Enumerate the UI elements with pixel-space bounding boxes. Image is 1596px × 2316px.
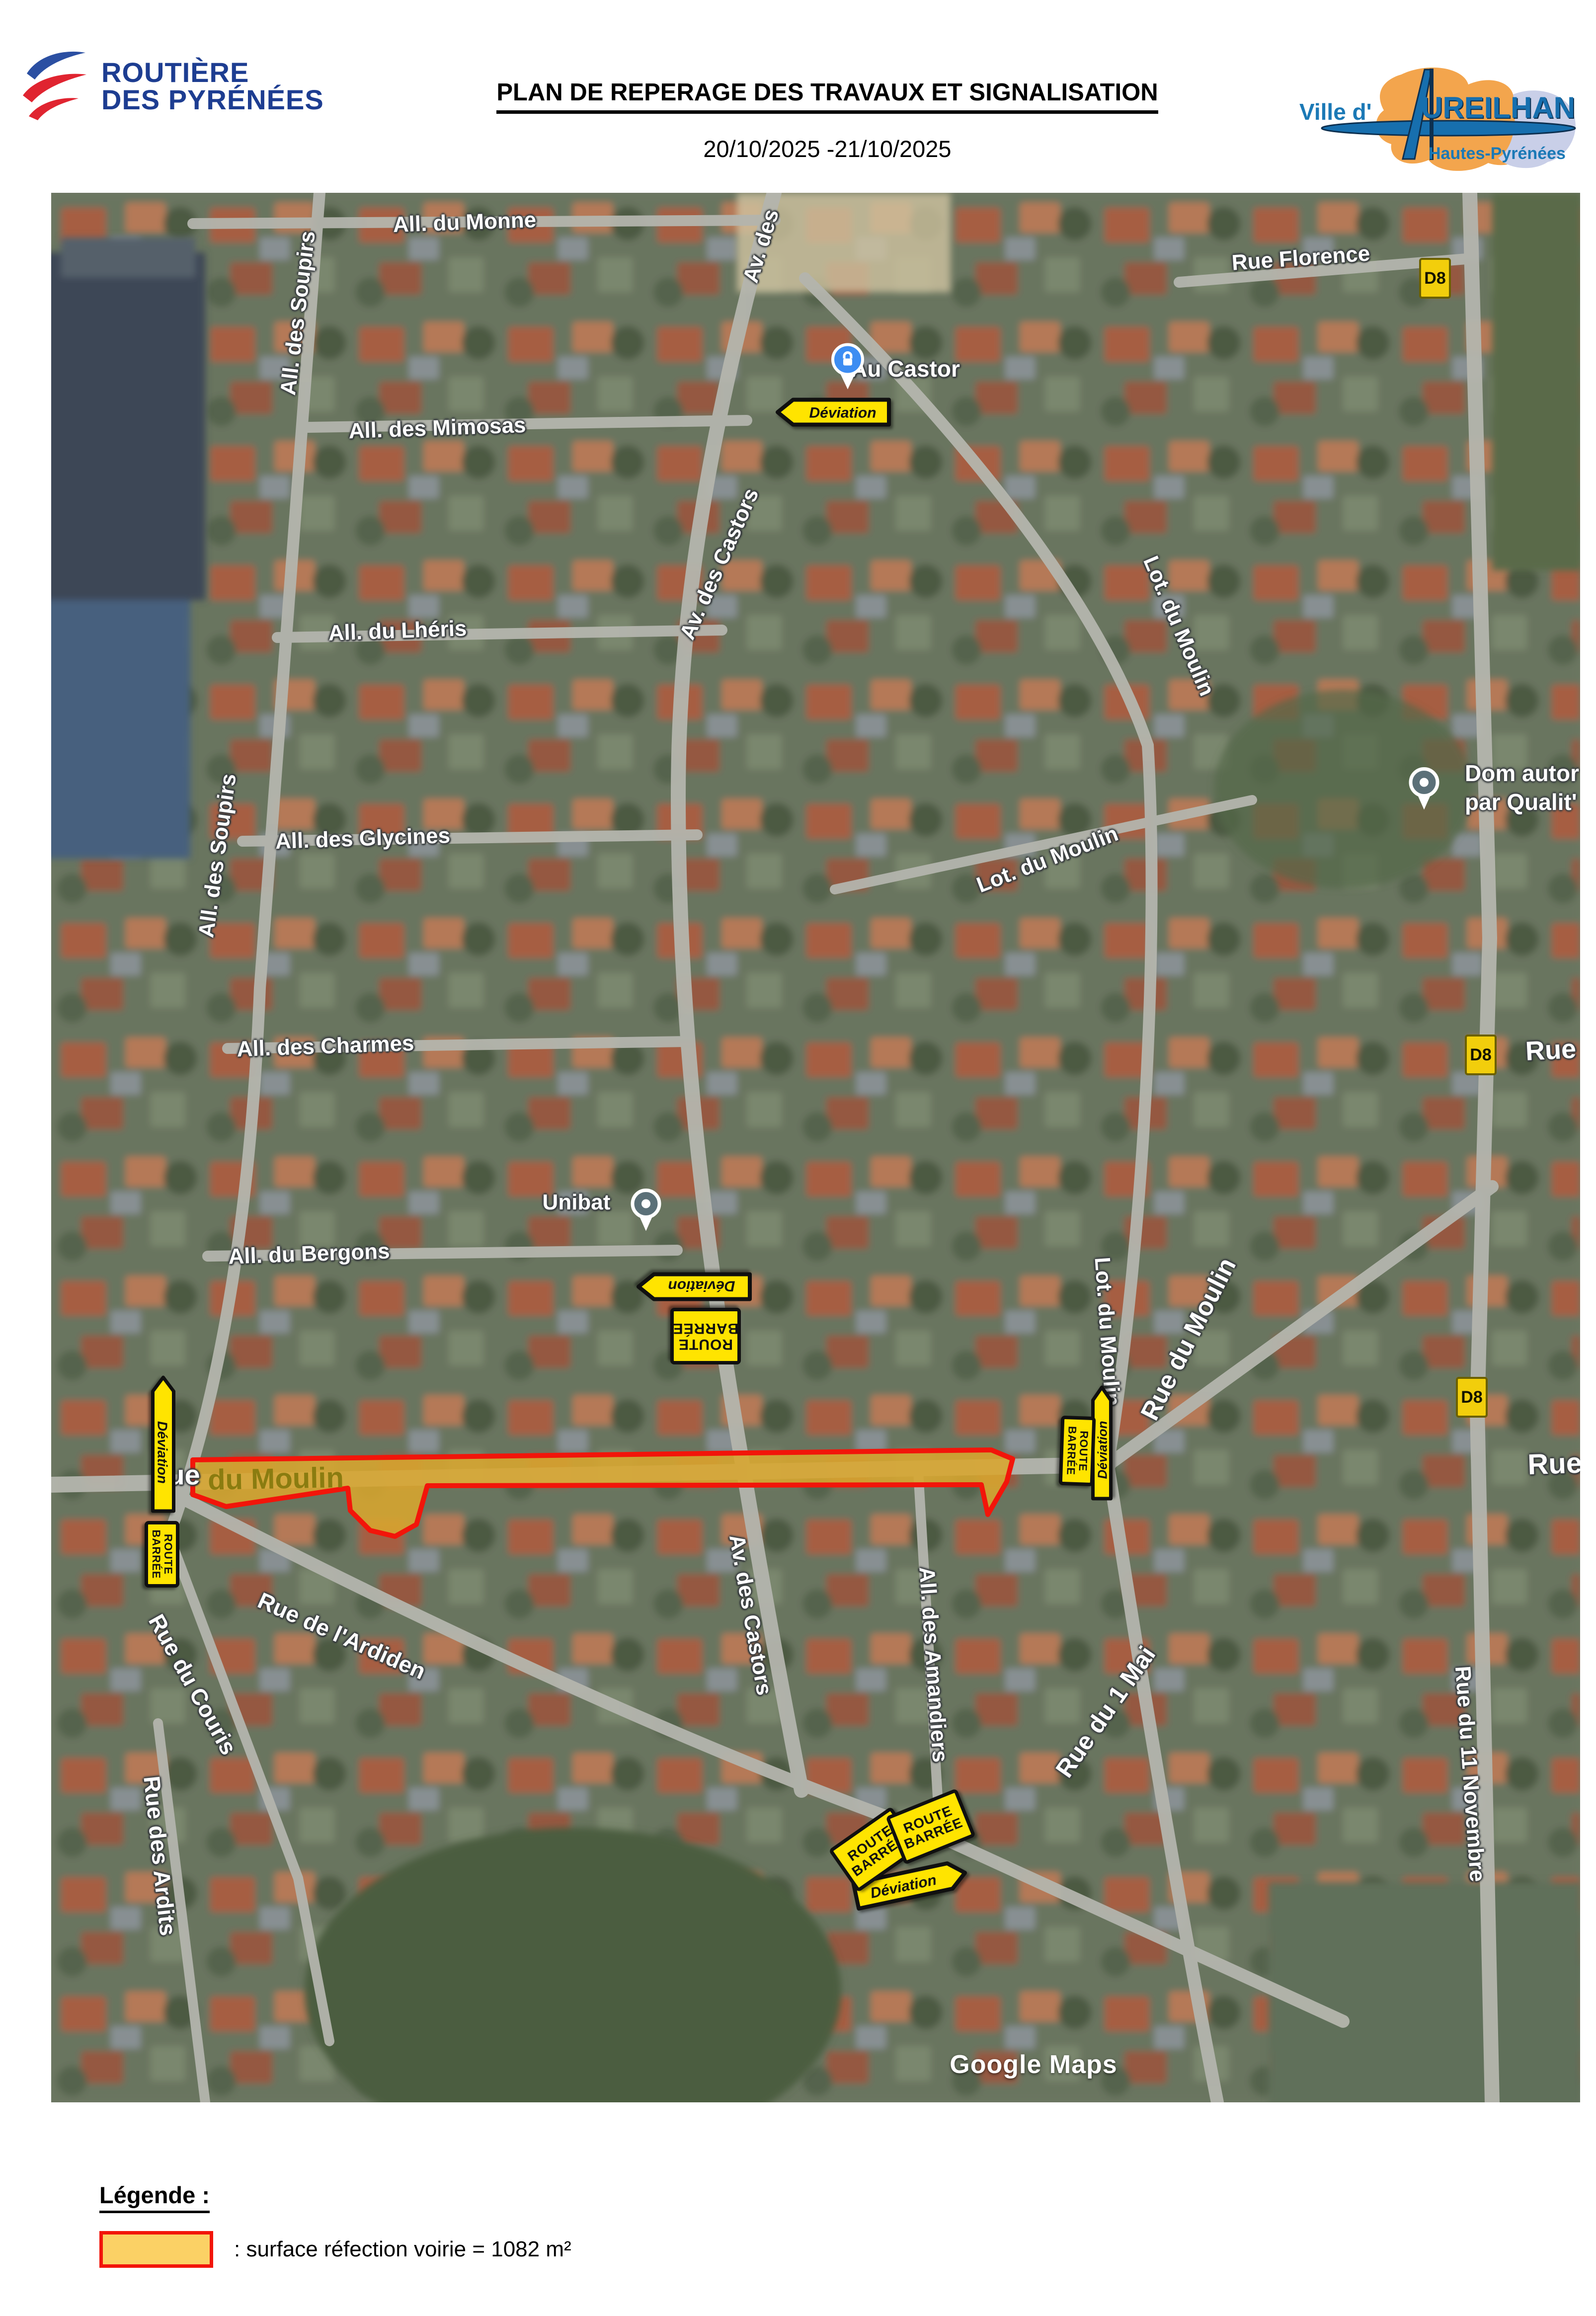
legend-swatch [99, 2231, 213, 2268]
aerial-imagery [51, 193, 1580, 2102]
deviation-sign: Déviation [775, 398, 892, 430]
ville-name-text: UREILHAN [1421, 90, 1575, 125]
poi-label-au-castor: Au Castor [851, 355, 960, 382]
legend-description: : surface réfection voirie = 1082 m² [234, 2237, 571, 2262]
street-label: All. du Lhéris [328, 616, 467, 646]
svg-text:Déviation: Déviation [668, 1278, 735, 1294]
legend-title: Légende : [99, 2181, 210, 2213]
street-label: All. du Monne [393, 208, 537, 238]
date-range: 20/10/2025 -21/10/2025 [462, 135, 1193, 162]
plan-document: ROUTIÈRE DES PYRÉNÉES PLAN DE REPERAGE D… [0, 0, 1596, 2316]
page-title: PLAN DE REPERAGE DES TRAVAUX ET SIGNALIS… [462, 79, 1193, 114]
ville-prefix-text: Ville d' [1299, 98, 1372, 125]
poi-label-dom-qualit: Dom autor par Qualit' [1465, 759, 1579, 816]
poi-label-unibat: Unibat [543, 1190, 611, 1215]
svg-text:Déviation: Déviation [1095, 1421, 1110, 1479]
street-label-on-highlight: du Moulin [208, 1461, 344, 1497]
deviation-sign: Déviation [149, 1375, 176, 1515]
ville-aureilhan-logo: Ville d' UREILHAN Hautes-Pyrénées [1299, 65, 1578, 179]
ville-subtitle-text: Hautes-Pyrénées [1429, 144, 1566, 163]
d8-road-badge: D8 [1465, 1035, 1497, 1075]
street-label: Rue N [1524, 1032, 1580, 1067]
d8-road-badge: D8 [1456, 1377, 1488, 1418]
route-barree-sign: ROUTEBARRÉE [145, 1521, 179, 1588]
dom-qualit-marker-icon[interactable] [1407, 766, 1441, 814]
routiere-chevrons-icon [18, 48, 92, 125]
route-barree-sign: ROUTEBARRÉE [670, 1308, 741, 1364]
google-maps-watermark: Google Maps [950, 2050, 1117, 2079]
svg-text:Déviation: Déviation [809, 405, 876, 421]
deviation-sign: Déviation [636, 1270, 753, 1302]
route-barree-sign: ROUTEBARRÉE [1059, 1416, 1096, 1486]
au-castor-marker-icon[interactable] [829, 342, 867, 394]
unibat-marker-icon[interactable] [629, 1188, 663, 1236]
street-label: Rue d [1527, 1445, 1580, 1482]
svg-text:Déviation: Déviation [155, 1421, 170, 1484]
satellite-map[interactable]: All. du Monne All. des Soupirs Av. des A… [51, 193, 1580, 2102]
routiere-logo-text: ROUTIÈRE DES PYRÉNÉES [101, 59, 324, 114]
document-header: ROUTIÈRE DES PYRÉNÉES PLAN DE REPERAGE D… [0, 0, 1596, 193]
routiere-des-pyrenees-logo: ROUTIÈRE DES PYRÉNÉES [18, 48, 324, 125]
d8-road-badge: D8 [1419, 258, 1451, 299]
legend: Légende : : surface réfection voirie = 1… [99, 2181, 210, 2213]
